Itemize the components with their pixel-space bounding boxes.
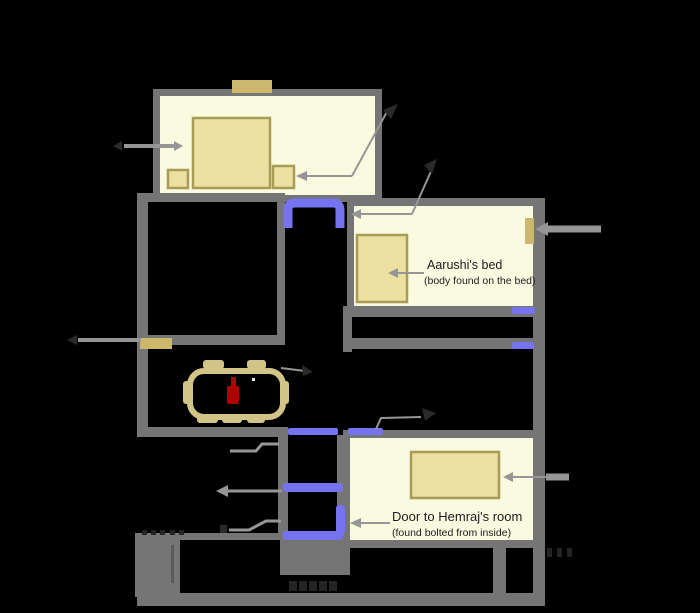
nightstand-left: [168, 170, 188, 188]
speck: [252, 378, 255, 381]
stairs-seam: [171, 545, 174, 583]
chair: [281, 381, 289, 404]
parents-bed: [193, 118, 270, 188]
wall-parents-right: [375, 89, 382, 202]
mark: [547, 548, 552, 557]
floor-plan-svg: Aarushi's bed (body found on the bed) Do…: [0, 0, 700, 613]
mark: [329, 581, 337, 591]
window-aarushi-right: [525, 218, 534, 244]
window-parents-top: [232, 80, 272, 93]
mark: [289, 581, 297, 591]
label-remnant: [220, 525, 227, 533]
mark: [160, 530, 165, 535]
wall-left-outer: [137, 193, 148, 437]
wall-aarushi-top: [347, 198, 545, 206]
bottle-body: [227, 386, 239, 404]
hemrajs-bed: [411, 452, 499, 498]
label-aarushi-bed-note: (body found on the bed): [424, 275, 536, 287]
wall-bottom-outer: [137, 593, 545, 606]
wall-bathroom-top: [343, 338, 535, 349]
mark: [309, 581, 317, 591]
door-bathroom-terrace: [512, 342, 534, 349]
chair: [197, 414, 218, 423]
door-corridor-top: [288, 428, 338, 435]
mark: [557, 548, 562, 557]
mark: [299, 581, 307, 591]
wall-aarushi-left: [347, 198, 354, 313]
wall-dining-bottom: [137, 427, 288, 437]
floor-plan-canvas: Aarushi's bed (body found on the bed) Do…: [0, 0, 700, 613]
entrance-block: [280, 538, 350, 575]
nightstand-right: [273, 166, 294, 188]
door-main-entrance: [283, 531, 343, 540]
chair: [247, 360, 266, 369]
mark: [170, 530, 175, 535]
wall-bottom-compartment: [493, 543, 506, 593]
label-aarushi-bed: Aarushi's bed: [427, 258, 502, 272]
door-corridor-middle: [283, 483, 343, 492]
chair: [203, 360, 224, 369]
mark: [319, 581, 327, 591]
wall-drawing-top: [137, 193, 285, 202]
mark: [567, 548, 572, 557]
label-hemraj-door: Door to Hemraj's room: [392, 509, 522, 524]
mark: [151, 530, 156, 535]
door-bathroom: [348, 428, 383, 435]
chair: [222, 414, 242, 423]
wall-kitchen-bottom: [135, 533, 280, 540]
door-hemraj-room: [336, 505, 345, 535]
chair: [183, 381, 191, 404]
chair: [247, 414, 265, 423]
label-hemraj-door-note: (found bolted from inside): [392, 527, 511, 539]
window-left-wall: [140, 338, 172, 349]
mark: [179, 530, 184, 535]
wall-hemraj-bottom: [343, 540, 535, 548]
door-aarushi-terrace: [512, 307, 535, 314]
mark: [142, 530, 147, 535]
aarushis-bed: [357, 235, 407, 302]
wall-right-outer: [533, 198, 545, 593]
